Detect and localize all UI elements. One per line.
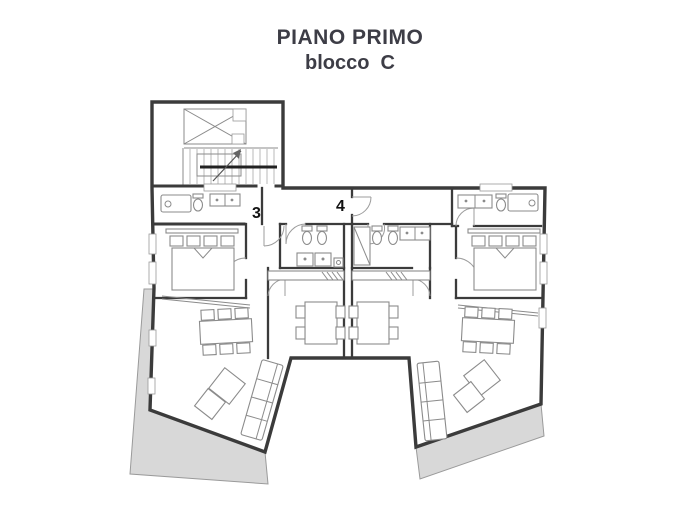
- chair-icon: [336, 327, 345, 339]
- bathroom-4-top: [458, 194, 538, 211]
- toilet-icon: [302, 226, 312, 231]
- kitchen-table-icon: [305, 302, 337, 344]
- dining-table-icon: [199, 308, 253, 356]
- toilet-icon: [496, 194, 506, 198]
- headboard: [166, 229, 238, 233]
- apartment-4-label: 4: [336, 198, 345, 215]
- toilet-icon: [372, 226, 382, 231]
- headboard: [468, 229, 540, 233]
- chair-icon: [336, 306, 345, 318]
- bidet-icon: [388, 226, 398, 231]
- bathtub-icon: [508, 194, 538, 211]
- bidet-icon: [317, 226, 327, 231]
- chair-icon: [389, 327, 398, 339]
- floor-plan: 3 4: [0, 0, 700, 524]
- apartment-3-label: 3: [252, 205, 261, 222]
- chair-icon: [349, 327, 358, 339]
- chair-icon: [349, 306, 358, 318]
- floor-drain: [334, 258, 343, 267]
- dining-table-icon: [461, 307, 515, 355]
- toilet-icon: [193, 194, 203, 198]
- chair-icon: [296, 306, 305, 318]
- floor-plan-page: PIANO PRIMO blocco C: [0, 0, 700, 524]
- kitchen-table-icon: [357, 302, 389, 344]
- chair-icon: [296, 327, 305, 339]
- chair-icon: [389, 306, 398, 318]
